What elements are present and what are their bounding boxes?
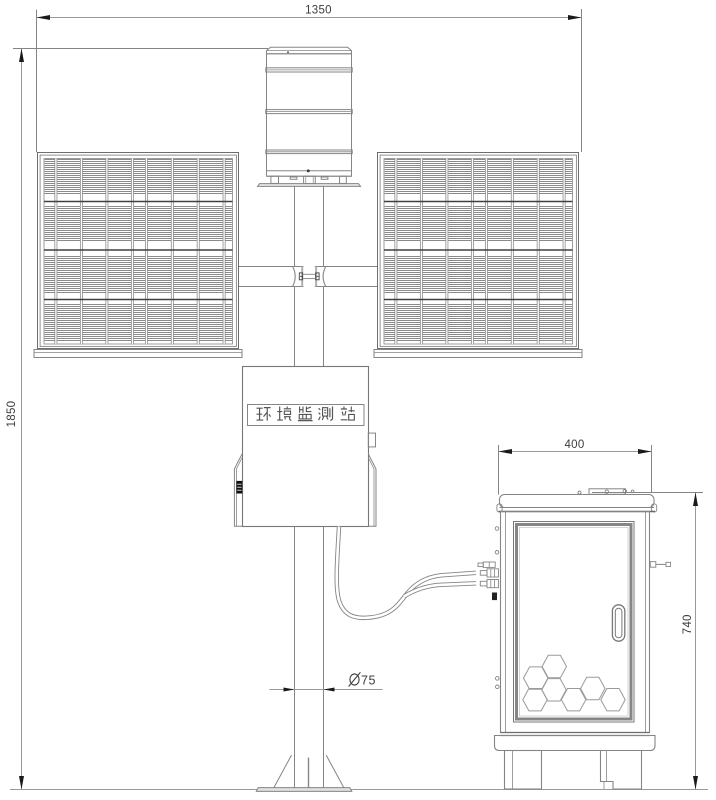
svg-text:1850: 1850 — [6, 401, 18, 428]
svg-text:400: 400 — [564, 439, 584, 451]
svg-text:1350: 1350 — [305, 5, 332, 17]
svg-text:740: 740 — [682, 614, 694, 634]
svg-text:75: 75 — [361, 674, 376, 688]
